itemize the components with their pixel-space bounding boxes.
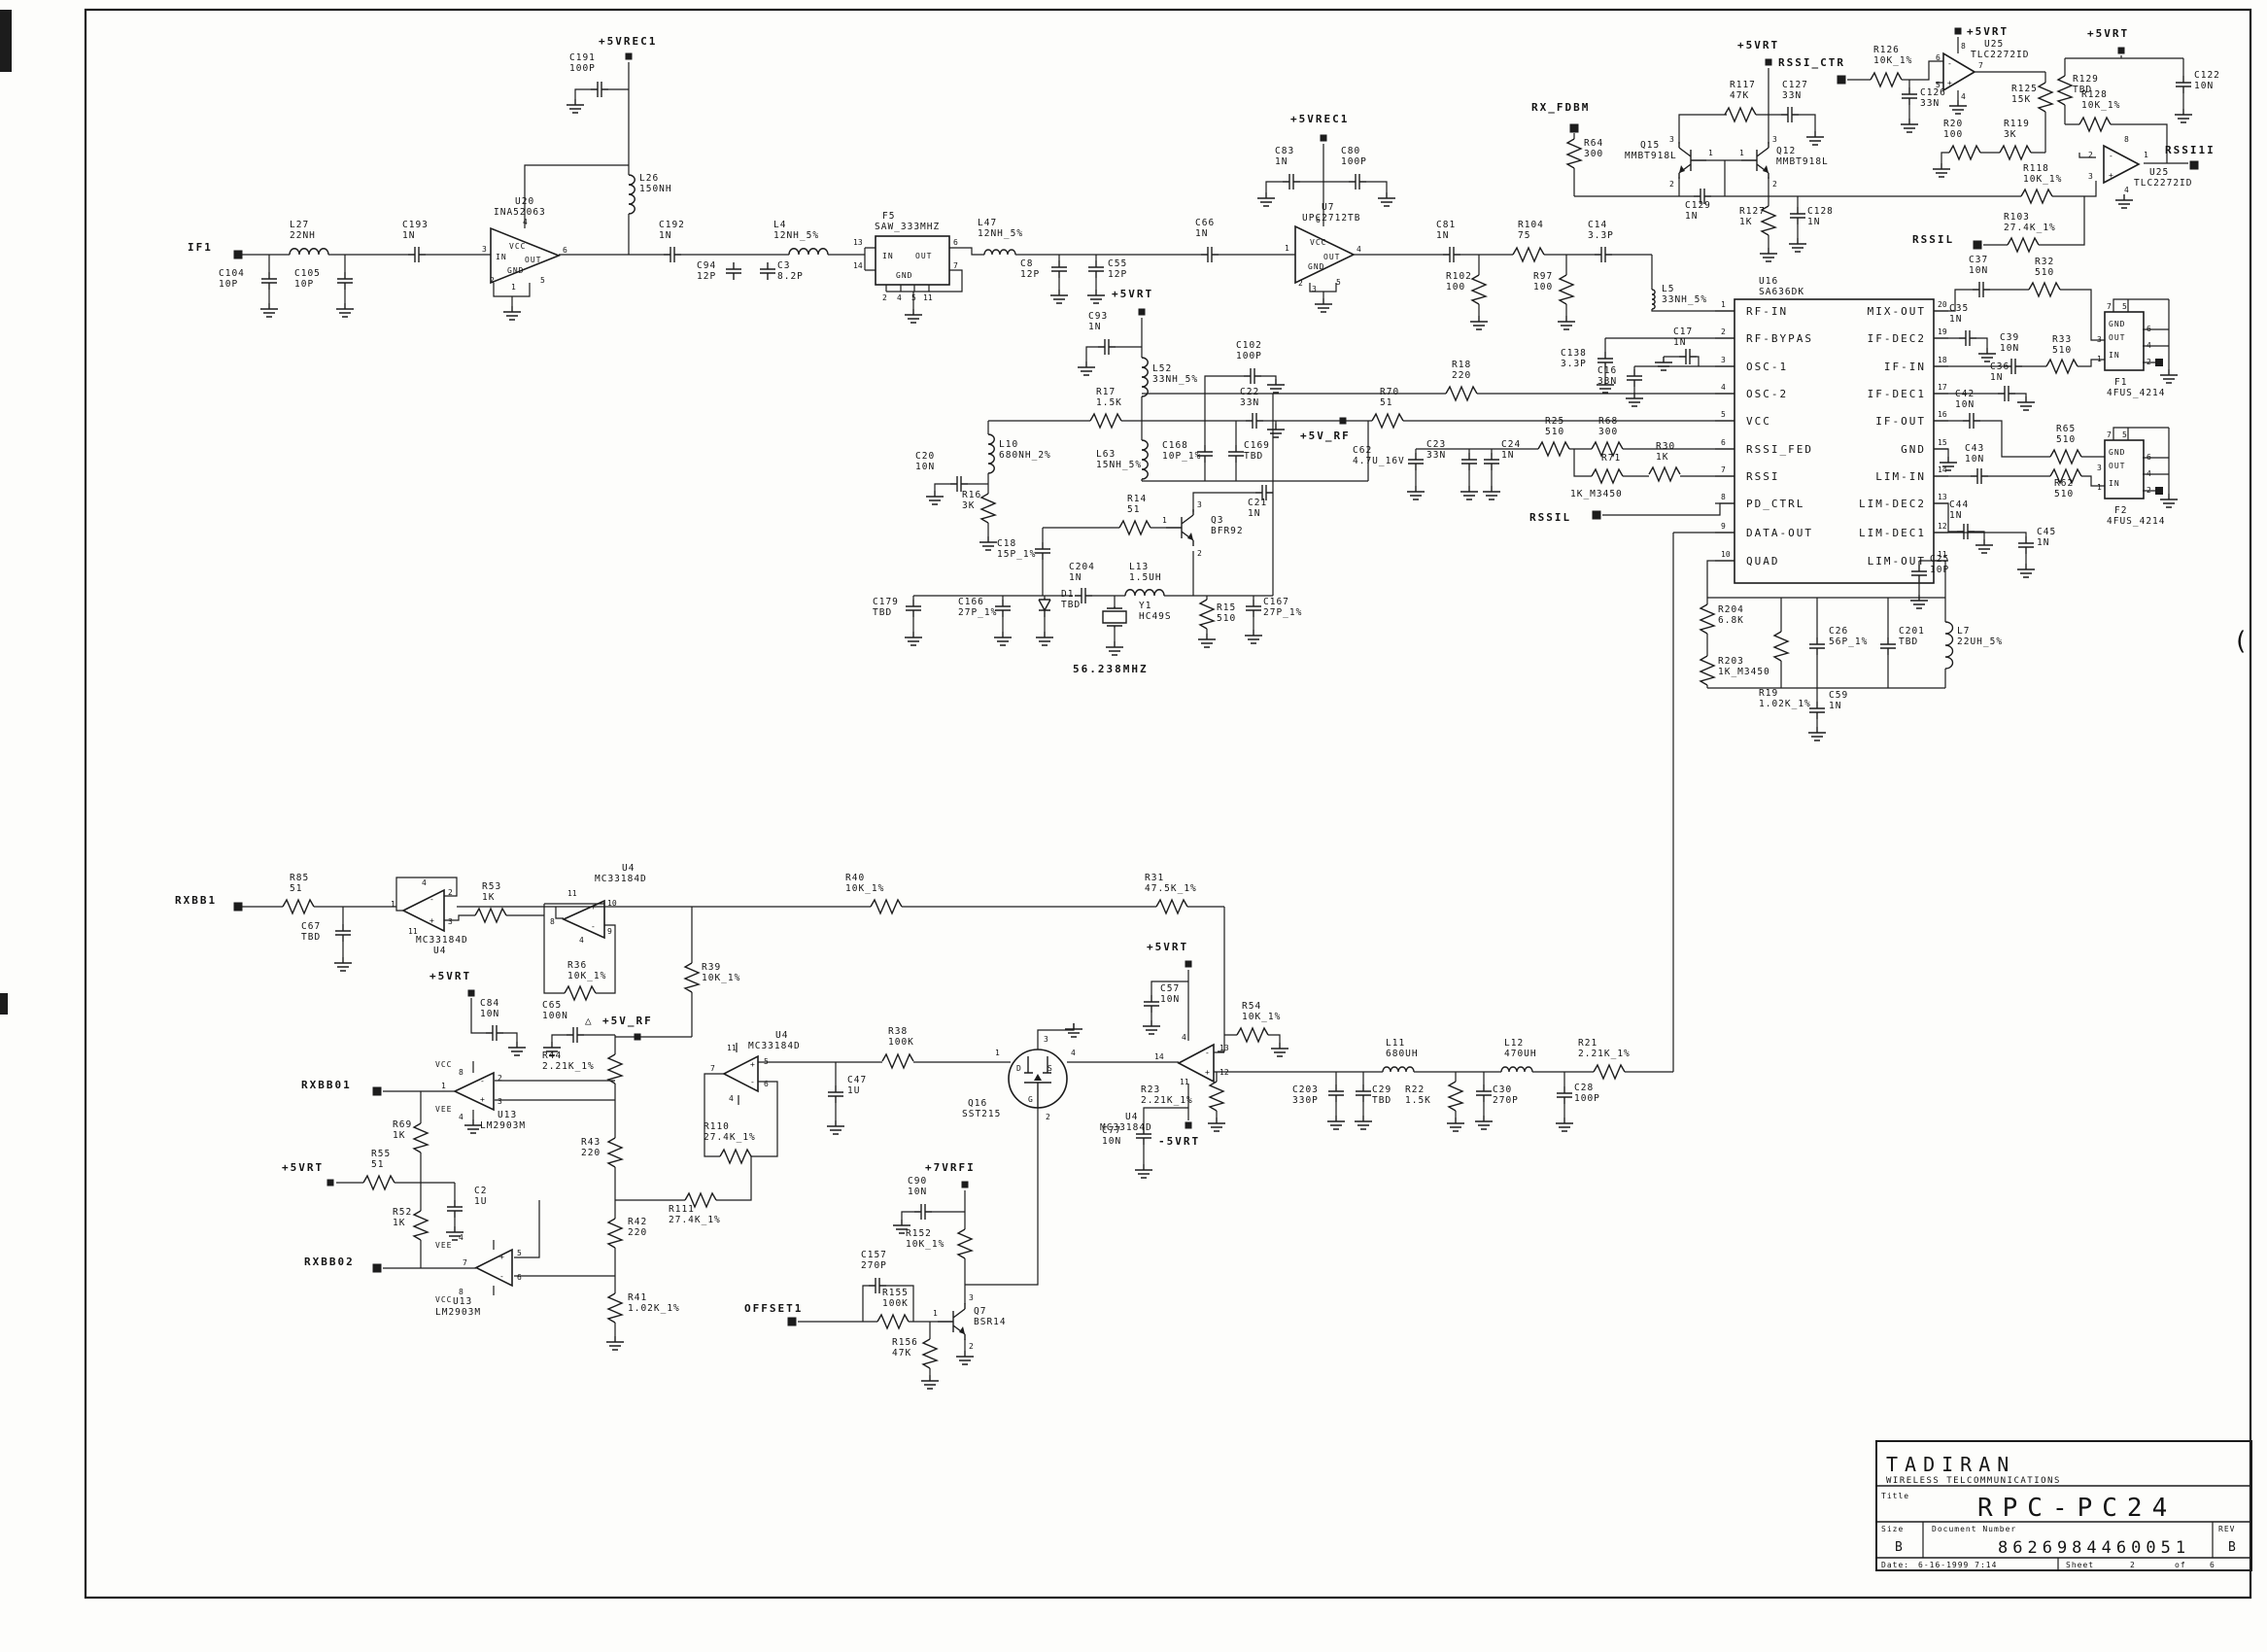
transistor-pin-number: 1 [933,1309,938,1318]
component-value: 300 [1584,149,1603,159]
opamp-pin-number: 11 [408,927,418,936]
component-value: 10K_1% [2023,174,2062,185]
ground-symbol [2175,109,2192,122]
capH-symbol [408,247,426,262]
component-value: 10P [219,279,238,290]
opamp-pin-number: 4 [1357,245,1361,254]
resH-symbol [2050,450,2081,464]
annotation-text: 4 [459,1113,464,1121]
net-label: +5VREC1 [599,35,657,48]
transistor-pin-number: 3 [969,1293,974,1302]
opamp-label: U4 [622,863,635,874]
filter-inner-label: IN [882,252,894,260]
component-ref: C45 [2037,527,2056,537]
port-square [234,903,243,912]
component-value: 1K [482,892,495,903]
component-D1: D1TBD [1039,589,1081,617]
transistor-pin-number: 1 [1739,149,1744,157]
component-value: 270P [861,1260,887,1271]
component-value: 51 [1127,504,1140,515]
transistor-pin-number: 4 [1071,1049,1076,1057]
resH-symbol [1513,248,1544,261]
capV-symbol [1088,260,1104,278]
component-R69: R691K [393,1119,428,1153]
component-C128: C1281N [1790,206,1834,227]
ground-symbol [979,536,997,550]
component-value: 1N [1195,228,1208,239]
component-C66: C661N [1195,218,1219,262]
component-value: 15P_1% [997,549,1036,560]
opamp-pin-number: 7 [710,1064,715,1073]
component-C14: C143.3P [1588,220,1614,262]
component-C84: C8410N [480,998,503,1041]
net-label: -5VRT [1158,1135,1200,1148]
component-value: TBD [1899,637,1918,647]
component-ref: C81 [1436,220,1456,230]
component-ref: R65 [2056,424,2076,434]
net-5vrt: +5VRT [429,970,475,997]
ground-symbol [1910,595,1928,608]
component-value: 1K [393,1130,405,1141]
opamp-pin-number: 5 [764,1057,769,1066]
indV-symbol [1945,622,1953,669]
sheet-label: Sheet [2066,1561,2094,1569]
ground-symbol [2017,564,2035,577]
net-label: +5VRT [1112,288,1153,300]
port-square [373,1264,382,1273]
component-value: 47.5K_1% [1145,883,1197,894]
component-ref: R126 [1873,45,1900,55]
ground-symbol [334,957,352,971]
ic-pin-number: 6 [1721,438,1726,447]
ic-pin-number: 10 [1721,550,1731,559]
ic-U16: U16SA636DK1RF-INMIX-OUT202RF-BYPASIF-DEC… [1715,276,1948,583]
doc-label: Document Number [1932,1525,2016,1533]
component-value: 1.5K [1096,397,1122,408]
opamp-label: U13 [453,1296,472,1307]
filter-pin-number: 4 [2147,341,2151,350]
component-value: 27.4K_1% [2004,223,2056,233]
opamp-pin-number: 6 [764,1080,769,1088]
ground-symbol [1933,163,1950,177]
transistor-label: MMBT918L [1625,151,1677,161]
transistor-pin-number: 1 [1708,149,1713,157]
filter-ref: F2 [2114,505,2127,516]
component-ref: R30 [1656,441,1675,452]
ic-pin-number: 20 [1938,300,1947,309]
annotation-text: VEE [435,1105,452,1114]
date-value: 6-16-1999 7:14 [1918,1561,1997,1569]
component-value: 3K [962,500,975,511]
capV-symbol [337,272,353,290]
component-value: 33NH_5% [1662,294,1707,305]
wires-layer [235,37,2188,1375]
component-ref: C3 [777,260,790,271]
net-if1: IF1 [188,241,243,259]
component-R44: R442.21K_1% [542,1050,622,1084]
ground-symbol [1355,1116,1372,1129]
component-R16: R163K [962,490,995,523]
net-rssil: RSSIL [1529,511,1601,525]
opamp-label: U25 [1984,39,2004,50]
net-label: IF1 [188,241,213,254]
ic-pin-name: GND [1901,443,1926,456]
component-ref: R31 [1145,873,1164,883]
capH-symbol [1443,247,1460,262]
filter-pin-number: 6 [2147,325,2151,333]
net-label: RSSIL [1912,233,1954,246]
opamp-pin-number: 3 [2088,172,2093,181]
resH-symbol [363,1176,395,1189]
ic-pin-name: RSSI_FED [1746,443,1813,456]
component-ref: R62 [2054,478,2074,489]
opamp-pin-number: 6 [517,1273,522,1282]
component-R15: R15510 [1200,600,1236,629]
component-value: HC49S [1139,611,1172,622]
annotation-text: 8 [459,1288,464,1296]
ic-pin-name: OSC-1 [1746,361,1788,373]
ic-pin-name: LIM-IN [1875,470,1926,483]
component-R70: R7051 [1372,387,1403,428]
component-C3: C38.2P [760,260,804,282]
capH-symbol [1595,247,1612,262]
resH-symbol [1594,1065,1625,1079]
ic-pin-number: 4 [1721,383,1726,392]
component-value: 10N [915,462,935,472]
ground-symbol [905,309,922,323]
component-R155: R155100K [877,1288,909,1328]
component-ref: R102 [1446,271,1472,282]
resH-symbol [283,900,314,913]
annotation-text: △ [585,1015,594,1027]
component-value: 1N [1829,701,1841,711]
component-value: 1K [393,1218,405,1228]
opamp-inner-label: GND [1308,262,1324,271]
opamp-pin-number: 3 [1312,285,1317,293]
opamp-pin-number: 5 [517,1249,522,1257]
ground-symbol [1327,1116,1345,1129]
opamp-pin-number: 4 [422,878,427,887]
net-label: RX_FDBM [1531,101,1590,114]
opamp-inner-label: VCC [1310,238,1326,247]
annotation-text: 4 [459,1233,464,1242]
component-L5: L533NH_5% [1652,284,1707,309]
component-value: 220 [1452,370,1471,381]
component-R41: R411.02K_1% [608,1292,680,1323]
component-value: 10P [1930,565,1949,575]
component-ref: R54 [1242,1001,1261,1012]
resV-symbol [923,1339,937,1368]
component-value: 10N [2000,343,2019,354]
component-C2: C21U [447,1186,487,1218]
component-ref: R25 [1545,416,1564,427]
ground-symbol [1626,393,1643,406]
opamp-label: TLC2272ID [1971,50,2029,60]
transistor-pin-number: 2 [969,1342,974,1351]
component-ref: C127 [1782,80,1808,90]
rev-label: REV [2218,1525,2235,1533]
component-value: 3.3P [1588,230,1614,241]
opamp-pin-number: 5 [1336,278,1341,287]
component-value: 100K [882,1298,909,1309]
transistor-Q7: Q7BSR14132 [933,1293,1007,1351]
component-ref: R127 [1739,206,1766,217]
net-5vrt: +5VRT [1147,941,1192,968]
schematic-wires [235,37,2188,1375]
component-ref: L7 [1957,626,1970,637]
transistor-label: BSR14 [974,1317,1007,1327]
resV-symbol [608,1138,622,1167]
component-ref: R69 [393,1119,412,1130]
ic-pin-name: LIM-OUT [1868,555,1926,568]
resH-symbol [1372,414,1403,428]
component-R97: R97100 [1533,271,1573,304]
component-ref: R16 [962,490,981,500]
transistor-pin-number: 3 [1669,135,1674,144]
transistor-pin-number: 1 [995,1049,1000,1057]
component-R103: R10327.4K_1% [2004,212,2056,252]
component-ref: C67 [301,921,321,932]
component-value: 1U [474,1196,487,1207]
indV-symbol [1142,358,1148,396]
transistor-pin-number: 3 [1772,135,1777,144]
ground-symbol [1078,361,1095,375]
resH-symbol [1592,469,1623,483]
indV-symbol [988,434,994,473]
opamp-label: MC33184D [1100,1122,1152,1133]
component-value: 10P_1% [1162,451,1201,462]
net-5vrt: +5VRT [282,1161,334,1187]
opamp-label: U13 [498,1110,517,1120]
component-C129: C1291N [1685,189,1711,222]
resV-symbol [1774,632,1788,661]
annotation-text: VCC [435,1060,452,1069]
component-ref: R32 [2035,257,2054,267]
component-R32: R32510 [2029,257,2060,296]
component-ref: R33 [2052,334,2072,345]
component-ref: R17 [1096,387,1116,397]
port-square [1974,241,1982,250]
transistor-label: BFR92 [1211,526,1244,536]
capV-symbol [995,600,1011,617]
component-value: 10N [1160,994,1180,1005]
component-value: 10N [1965,454,1984,465]
component-C179: C179TBD [873,597,921,618]
component-ref: L52 [1152,363,1172,374]
capV-symbol [760,262,775,280]
flag-square [626,53,633,60]
capV-symbol [335,924,351,942]
ground-symbol [1978,348,1996,361]
ground-symbol [336,303,354,317]
component-value: 10N [1969,265,1988,276]
indH-symbol [984,250,1015,255]
component-ref: L12 [1504,1038,1524,1049]
filter-pin-number: 7 [953,261,958,270]
resH-symbol [1949,146,1980,159]
component-ref: C203 [1292,1084,1319,1095]
component-value: 10K_1% [567,971,606,981]
component-ref: R71 [1601,453,1621,464]
resV-symbol [414,1123,428,1153]
filter-pin-number: 5 [2122,430,2127,439]
component-ref: C39 [2000,332,2019,343]
component-C104: C10410P [219,268,277,290]
component-ref: R22 [1405,1084,1425,1095]
filter-part: 4FUS_4214 [2107,388,2165,398]
component-value: 1N [1436,230,1449,241]
net-rxfdbm: RX_FDBM [1531,101,1590,133]
filter-pin-number: 3 [2097,335,2102,344]
capH-symbol [664,247,681,262]
capH-symbol [1973,282,1990,297]
flag-square [1185,961,1192,968]
filter-F2: F24FUS_4214GNDOUTIN7531642 [2097,430,2165,527]
transistor-pin-number: 1 [1162,516,1167,525]
component-ref: R64 [1584,138,1603,149]
component-value: 220 [581,1148,601,1158]
resV-symbol [1567,139,1581,168]
component-R203: R2031K_M3450 [1700,656,1770,685]
component-value: 10K_1% [1873,55,1912,66]
component-value: 51 [1380,397,1392,408]
component-value: 1K [1739,217,1752,227]
component-ref: R41 [628,1292,647,1303]
transistor-pin-number: 3 [1044,1035,1048,1044]
component-ref: C17 [1673,327,1693,337]
component-ref: R52 [393,1207,412,1218]
component-ref: C55 [1108,258,1127,269]
transistor-pin-number: 2 [1772,180,1777,189]
ic-pin-name: LIM-DEC2 [1859,498,1926,510]
ground-symbol [503,306,521,320]
component-value: 56P_1% [1829,637,1868,647]
opamp-label: UPC2712TB [1302,213,1360,224]
ground-symbol [1808,727,1826,740]
capH-symbol [1098,339,1116,355]
ic-pin-name: DATA-OUT [1746,527,1813,539]
component-value: 6.8K [1718,615,1744,626]
ground-symbol [1475,1116,1493,1129]
opamp-pin-number: 13 [1219,1044,1229,1052]
opamp-pin-number: 3 [482,245,487,254]
flag-square [327,1180,334,1187]
opamp-inner-label: - [1205,1049,1211,1057]
date-label: Date: [1881,1561,1909,1569]
resV-symbol [981,494,995,523]
capV-symbol [1809,702,1825,719]
component-value: 510 [1217,613,1236,624]
component-R18: R18220 [1446,360,1477,400]
indV-symbol [1142,440,1148,479]
capV-symbol [2176,76,2191,93]
component-ref: C29 [1372,1084,1391,1095]
component-value: TBD [301,932,321,943]
component-ref: C102 [1236,340,1262,351]
ic-ref: U16 [1759,276,1778,287]
opamp-pin-number: 1 [1285,244,1289,253]
resV-symbol [1210,1082,1223,1111]
resV-symbol [958,1229,972,1258]
component-ref: C90 [908,1176,927,1187]
resV-symbol [2058,76,2072,105]
filter-inner-label: OUT [915,252,932,260]
component-value: 680UH [1386,1049,1419,1059]
component-ref: L11 [1386,1038,1405,1049]
capV-symbol [261,272,277,290]
opamp-pin-number: 3 [448,917,453,926]
net-label: +5V_RF [602,1015,653,1027]
net-label: RXBB02 [304,1256,355,1268]
resH-symbol [1119,521,1151,534]
component-C102: C102100P [1236,340,1262,384]
capH-symbol [1246,413,1263,429]
opamp-inner-label: + [1947,79,1953,87]
ic-pin-number: 5 [1721,410,1726,419]
opamp-U4: U4MC33184D+-117564 [710,1030,801,1103]
title-label: Title [1881,1492,1909,1500]
opamp-inner-label: - [750,1078,756,1086]
component-L10: L10680NH_2% [988,434,1051,473]
ic-pin-number: 19 [1938,327,1947,336]
component-ref: R19 [1759,688,1778,699]
ground-symbol [921,1375,939,1389]
ic-pin-number: 8 [1721,493,1726,501]
component-ref: C37 [1969,255,1988,265]
opamp-pin-number: 12 [1219,1068,1229,1077]
component-ref: C138 [1561,348,1587,359]
component-value: 51 [290,883,302,894]
component-R30: R301K [1649,441,1680,481]
transistor-label: Q16 [968,1098,987,1109]
component-ref: R23 [1141,1084,1160,1095]
ic-pin-name: PD_CTRL [1746,498,1804,510]
component-C28: C28100P [1557,1083,1600,1104]
component-C23: C2333N [1426,439,1477,470]
net-label: OFFSET1 [744,1302,803,1315]
component-C201: C201TBD [1880,626,1925,655]
net-label: +5VRT [282,1161,324,1174]
filter-part: 4FUS_4214 [2107,516,2165,527]
component-ref: L13 [1129,562,1149,572]
opamp-pin-number: 2 [498,1074,502,1083]
component-value: 1N [1673,337,1686,348]
component-R21: R212.21K_1% [1578,1038,1631,1079]
capV-symbol [2018,536,2034,554]
component-value: 1U [847,1085,860,1096]
resH-symbol [1725,108,1756,121]
filter-pin-number: 11 [923,293,933,302]
ic-pin-number: 2 [1721,327,1726,336]
component-C35: C351N [1949,303,1976,346]
component-ref: R110 [704,1121,730,1132]
ground-symbol [1135,1164,1152,1178]
component-ref: L26 [639,173,659,184]
net-label: +5VRT [1967,25,2009,38]
component-ref: R203 [1718,656,1744,667]
ic-pin-name: QUAD [1746,555,1780,568]
component-R111: R11127.4K_1% [669,1193,721,1225]
sheet-border [86,10,2250,1598]
net-5vrt: +5VRT [1955,25,2009,38]
component-ref: C126 [1920,87,1946,98]
ground-symbol [1975,539,1993,553]
filter-pin-number: 5 [911,293,916,302]
component-R43: R43220 [581,1137,622,1167]
component-value: 1N [1501,450,1514,461]
net-label: RSSI1I [2165,144,2215,156]
component-value: 10K_1% [2081,100,2120,111]
